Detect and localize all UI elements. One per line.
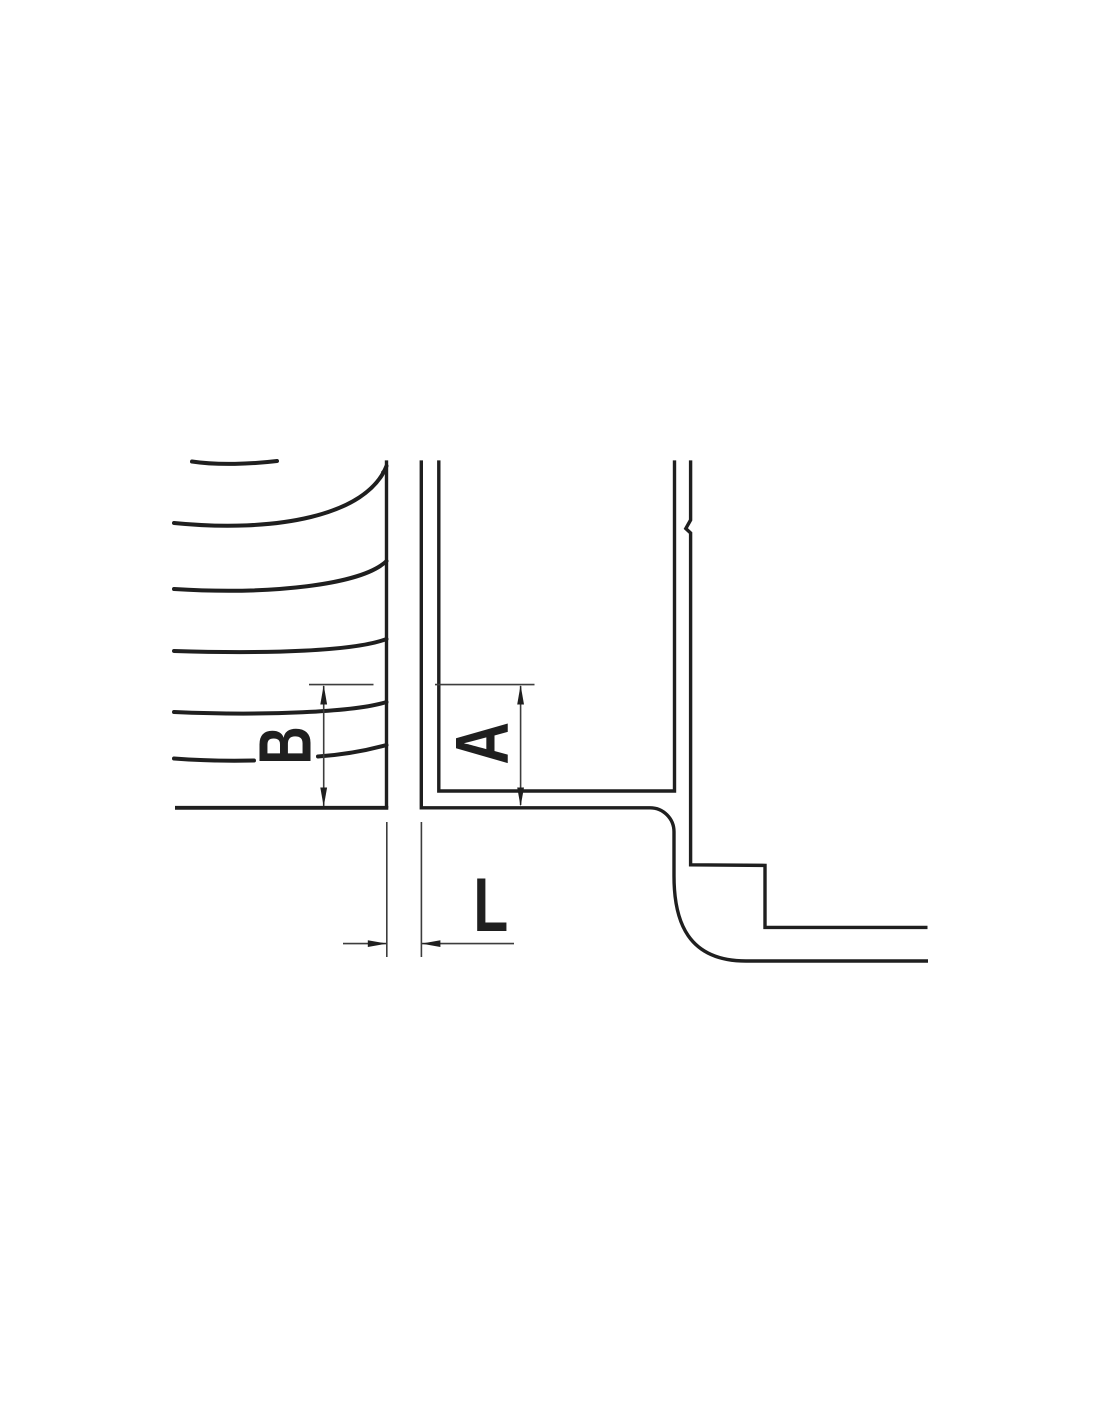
svg-text:L: L xyxy=(473,863,508,948)
svg-text:B: B xyxy=(244,726,327,764)
svg-text:A: A xyxy=(441,722,524,765)
